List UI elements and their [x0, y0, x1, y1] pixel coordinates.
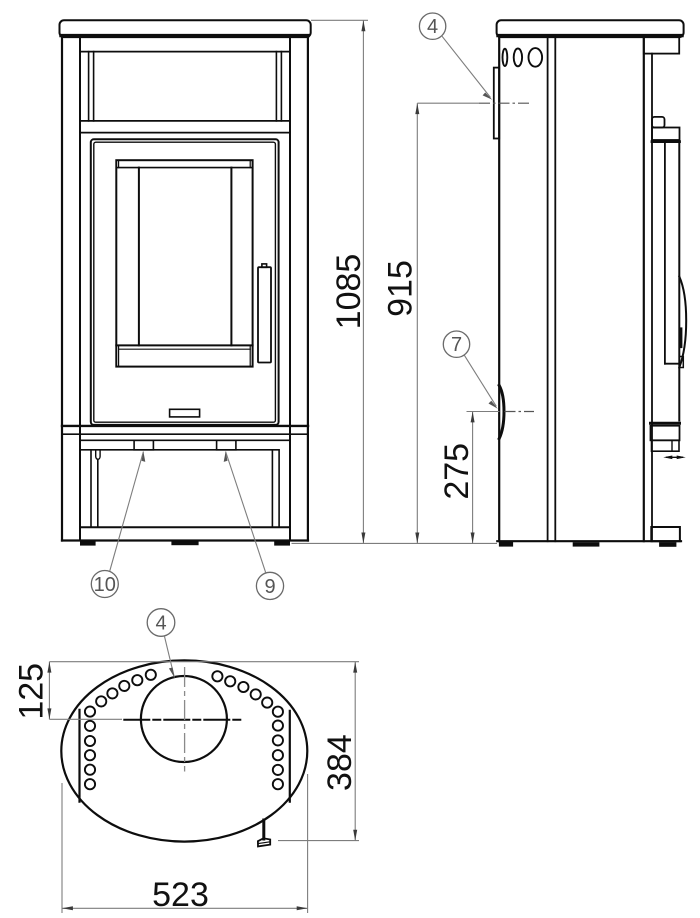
svg-text:1085: 1085	[330, 254, 368, 330]
svg-text:275: 275	[438, 443, 476, 500]
svg-text:125: 125	[13, 663, 51, 720]
svg-text:915: 915	[381, 260, 419, 317]
svg-text:4: 4	[427, 16, 438, 38]
svg-text:384: 384	[321, 734, 359, 791]
svg-text:9: 9	[264, 576, 275, 598]
svg-text:7: 7	[451, 334, 462, 356]
svg-text:10: 10	[94, 574, 116, 596]
svg-text:4: 4	[155, 613, 166, 635]
svg-text:523: 523	[152, 876, 209, 914]
